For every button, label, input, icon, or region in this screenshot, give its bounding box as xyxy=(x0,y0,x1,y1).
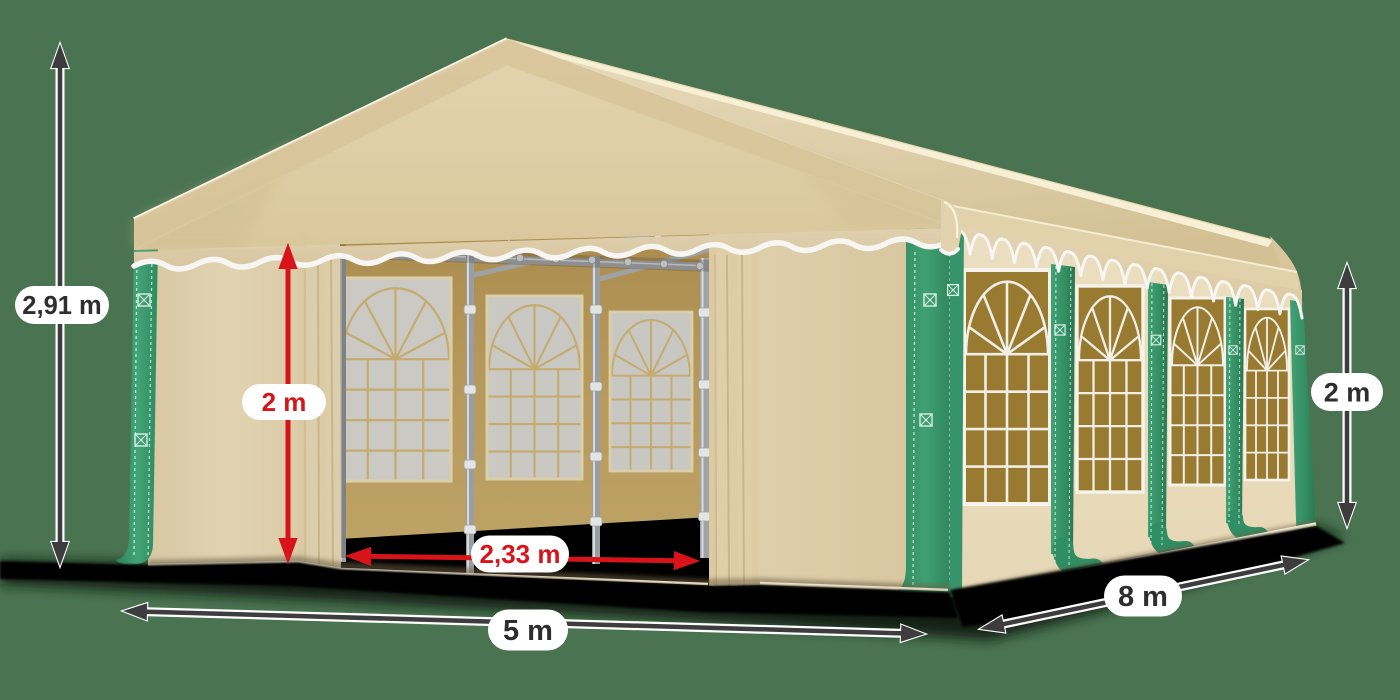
svg-text:2 m: 2 m xyxy=(262,387,307,417)
svg-text:2,33 m: 2,33 m xyxy=(480,539,561,569)
svg-text:2 m: 2 m xyxy=(1324,377,1371,407)
svg-text:2,91 m: 2,91 m xyxy=(22,292,101,320)
svg-text:8 m: 8 m xyxy=(1118,581,1168,613)
svg-text:5 m: 5 m xyxy=(503,615,553,647)
